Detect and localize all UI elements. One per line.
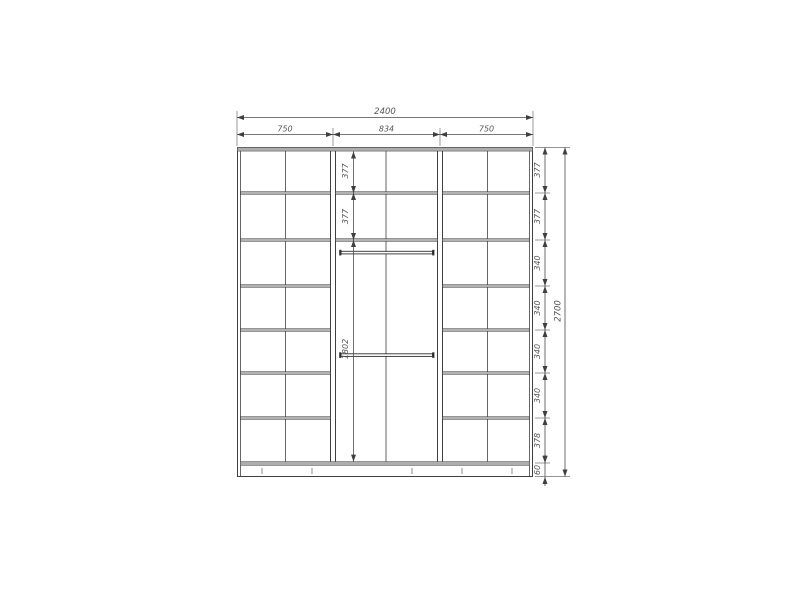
middle-section xyxy=(336,151,438,462)
dim-label-right-1: 377 xyxy=(533,161,542,177)
dim-label-total-height: 2700 xyxy=(554,300,564,322)
dim-label-right-6: 340 xyxy=(533,388,542,403)
dim-label-mid-row2: 377 xyxy=(341,208,350,224)
dim-label-total-width: 2400 xyxy=(374,107,396,117)
dim-label-mid-hanging: 1802 xyxy=(341,339,350,359)
dim-label-mid-row1: 377 xyxy=(341,162,350,178)
dim-label-right-7: 378 xyxy=(533,433,542,448)
dim-label-right-5: 340 xyxy=(533,344,542,359)
dim-right-chain: 377 377 340 340 340 340 378 60 xyxy=(533,148,570,487)
cabinet-outline xyxy=(238,148,533,477)
dim-label-right-3: 340 xyxy=(533,255,542,270)
dim-label-right-4: 340 xyxy=(533,300,542,315)
dim-label-right-2: 377 xyxy=(533,208,542,224)
dim-label-plinth: 60 xyxy=(533,465,542,475)
dim-label-section-middle: 834 xyxy=(379,125,394,134)
dim-label-section-right: 750 xyxy=(479,125,494,134)
left-section-grid xyxy=(241,151,331,462)
bottom-panel xyxy=(241,462,530,466)
dim-label-section-left: 750 xyxy=(277,125,292,134)
partition-right xyxy=(438,151,443,462)
dim-section-widths: 750 834 750 xyxy=(237,125,533,147)
dim-total-height: 2700 xyxy=(554,148,566,477)
partition-left xyxy=(331,151,336,462)
technical-drawing: 2400 750 834 750 377 377 1802 xyxy=(0,0,800,600)
dim-middle-chain: 377 377 1802 xyxy=(341,152,354,462)
plinth xyxy=(238,468,533,477)
right-section-grid xyxy=(443,151,530,462)
drawing-canvas: 2400 750 834 750 377 377 1802 xyxy=(0,0,800,600)
top-panel xyxy=(238,148,533,152)
